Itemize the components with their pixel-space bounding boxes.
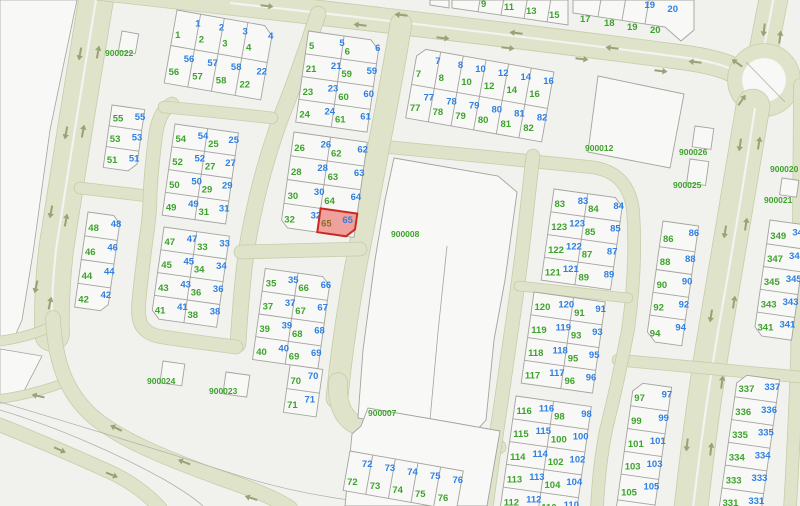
svg-text:61: 61 [360,112,371,123]
svg-text:331: 331 [723,498,740,506]
svg-text:336: 336 [761,405,777,416]
svg-text:19: 19 [644,0,655,11]
svg-text:123: 123 [569,219,585,230]
svg-text:9: 9 [481,0,486,10]
svg-text:113: 113 [507,475,522,486]
svg-text:94: 94 [650,328,661,339]
svg-text:94: 94 [675,322,686,333]
svg-text:112: 112 [526,495,541,506]
svg-text:113: 113 [529,472,544,483]
svg-text:47: 47 [187,234,198,245]
svg-text:22: 22 [240,80,251,91]
svg-text:37: 37 [263,301,274,312]
svg-text:57: 57 [192,71,203,82]
svg-text:75: 75 [430,471,441,482]
svg-text:43: 43 [180,279,191,290]
svg-text:75: 75 [415,489,426,500]
svg-text:59: 59 [367,66,378,77]
svg-text:101: 101 [628,439,645,450]
svg-text:26: 26 [321,139,332,150]
svg-text:345: 345 [786,274,800,285]
svg-text:115: 115 [513,429,529,440]
svg-text:118: 118 [552,345,567,356]
svg-text:78: 78 [446,97,457,108]
svg-text:61: 61 [335,115,346,126]
svg-text:900021: 900021 [764,195,793,205]
svg-text:16: 16 [543,76,554,87]
svg-text:74: 74 [392,485,403,496]
svg-text:334: 334 [755,450,772,461]
svg-text:11: 11 [504,2,515,13]
svg-text:34: 34 [216,261,227,272]
svg-text:50: 50 [169,180,180,191]
svg-text:43: 43 [158,283,169,294]
svg-text:30: 30 [288,191,299,202]
svg-text:73: 73 [370,481,381,492]
svg-text:104: 104 [566,477,583,488]
svg-text:85: 85 [585,227,596,238]
svg-text:66: 66 [321,280,332,291]
svg-text:92: 92 [679,300,690,311]
svg-text:29: 29 [222,181,233,192]
svg-text:84: 84 [588,204,599,215]
svg-text:93: 93 [592,327,603,338]
svg-text:12: 12 [484,81,495,92]
svg-text:55: 55 [113,113,124,124]
svg-text:68: 68 [292,329,303,340]
svg-text:63: 63 [354,168,365,179]
svg-text:97: 97 [634,393,645,404]
svg-text:79: 79 [469,101,480,112]
svg-text:349: 349 [792,228,800,239]
svg-text:76: 76 [438,493,449,504]
svg-text:36: 36 [213,284,224,295]
svg-text:4: 4 [246,43,252,54]
svg-text:52: 52 [195,154,206,165]
svg-text:97: 97 [662,390,673,401]
svg-text:19: 19 [627,22,638,33]
svg-text:62: 62 [357,145,368,156]
svg-text:64: 64 [351,192,362,203]
svg-text:83: 83 [578,196,589,207]
svg-text:27: 27 [205,162,216,173]
svg-text:331: 331 [748,496,765,506]
svg-text:90: 90 [682,277,693,288]
svg-text:56: 56 [169,67,180,78]
svg-text:28: 28 [317,163,328,174]
svg-text:120: 120 [558,300,574,311]
svg-text:112: 112 [504,497,519,506]
svg-text:119: 119 [556,323,571,334]
svg-text:77: 77 [410,103,421,114]
svg-text:900008: 900008 [391,229,420,239]
svg-text:84: 84 [613,201,624,212]
svg-text:42: 42 [78,295,89,306]
svg-text:81: 81 [501,119,512,130]
svg-text:38: 38 [210,307,221,318]
svg-text:73: 73 [385,463,396,474]
svg-text:91: 91 [574,308,585,319]
svg-text:33: 33 [219,238,230,249]
svg-text:48: 48 [88,223,99,234]
svg-text:72: 72 [347,477,358,488]
svg-text:115: 115 [536,426,552,437]
svg-text:1: 1 [175,30,181,41]
svg-text:16: 16 [529,89,540,100]
svg-text:3: 3 [243,27,248,38]
svg-text:96: 96 [565,376,576,387]
svg-text:49: 49 [188,199,199,210]
svg-text:118: 118 [528,348,543,359]
svg-text:93: 93 [571,331,582,342]
svg-text:59: 59 [341,69,352,80]
svg-text:92: 92 [653,303,664,314]
svg-text:52: 52 [172,157,183,168]
svg-text:53: 53 [132,133,143,144]
svg-text:88: 88 [685,254,696,265]
svg-text:114: 114 [532,449,548,460]
svg-text:15: 15 [549,10,560,21]
svg-text:57: 57 [207,58,218,69]
svg-text:28: 28 [291,167,302,178]
svg-text:64: 64 [324,196,335,207]
svg-text:114: 114 [510,452,526,463]
svg-text:65: 65 [321,219,332,230]
svg-text:900007: 900007 [368,408,397,418]
svg-text:89: 89 [579,272,590,283]
svg-text:39: 39 [259,324,270,335]
svg-text:32: 32 [284,215,295,226]
svg-text:333: 333 [752,473,768,484]
svg-text:58: 58 [231,62,242,73]
svg-text:62: 62 [331,148,342,159]
svg-text:24: 24 [299,110,310,121]
svg-text:29: 29 [202,184,213,195]
svg-text:45: 45 [161,260,172,271]
svg-text:337: 337 [764,382,780,393]
svg-text:22: 22 [257,67,268,78]
svg-text:4: 4 [268,31,274,42]
svg-text:122: 122 [548,245,564,256]
svg-text:900024: 900024 [147,376,176,386]
svg-text:70: 70 [291,376,302,387]
svg-text:105: 105 [643,482,660,493]
svg-text:56: 56 [184,54,195,65]
svg-text:10: 10 [475,64,486,75]
svg-text:3: 3 [222,39,227,50]
svg-text:60: 60 [363,89,374,100]
svg-text:27: 27 [225,158,236,169]
svg-text:122: 122 [566,242,582,253]
svg-text:40: 40 [278,344,289,355]
svg-text:99: 99 [658,413,669,424]
svg-text:47: 47 [165,237,176,248]
svg-text:40: 40 [256,347,267,358]
svg-text:79: 79 [455,111,466,122]
svg-text:69: 69 [289,352,300,363]
svg-text:51: 51 [129,153,140,164]
svg-text:63: 63 [328,172,339,183]
svg-text:2: 2 [219,23,224,34]
svg-text:14: 14 [507,85,518,96]
svg-text:46: 46 [85,247,96,258]
svg-text:67: 67 [317,303,328,314]
svg-text:74: 74 [407,467,418,478]
svg-text:20: 20 [650,25,661,36]
svg-text:13: 13 [526,6,537,17]
svg-text:23: 23 [303,87,314,98]
svg-text:25: 25 [228,135,239,146]
svg-text:1: 1 [195,18,201,29]
svg-text:33: 33 [197,242,208,253]
svg-text:44: 44 [104,266,115,277]
svg-text:343: 343 [761,300,777,311]
svg-text:102: 102 [548,457,564,468]
svg-text:35: 35 [266,279,277,290]
svg-text:90: 90 [657,280,668,291]
svg-text:110: 110 [541,503,556,506]
svg-text:347: 347 [767,254,783,265]
svg-text:900023: 900023 [209,386,238,396]
svg-text:42: 42 [101,290,112,301]
svg-text:20: 20 [667,4,678,15]
svg-text:117: 117 [549,368,564,379]
svg-text:7: 7 [416,69,421,80]
svg-text:86: 86 [689,228,700,239]
svg-text:116: 116 [539,404,554,415]
svg-text:41: 41 [155,306,166,317]
svg-text:76: 76 [453,475,464,486]
svg-text:25: 25 [208,139,219,150]
svg-text:72: 72 [362,459,373,470]
svg-text:98: 98 [581,409,592,420]
svg-text:91: 91 [595,304,606,315]
svg-text:60: 60 [338,92,349,103]
svg-text:78: 78 [433,107,444,118]
svg-text:116: 116 [517,406,532,417]
svg-text:6: 6 [375,43,380,54]
svg-text:345: 345 [764,277,781,288]
svg-text:46: 46 [107,243,118,254]
svg-text:96: 96 [586,373,597,384]
svg-text:36: 36 [191,287,202,298]
svg-text:38: 38 [188,310,199,321]
svg-text:99: 99 [631,416,642,427]
svg-text:333: 333 [726,475,742,486]
svg-text:68: 68 [314,325,325,336]
svg-text:82: 82 [537,113,548,124]
svg-text:69: 69 [311,348,322,359]
svg-text:82: 82 [523,123,534,134]
svg-text:900020: 900020 [770,164,799,174]
svg-text:900012: 900012 [585,143,614,153]
svg-text:31: 31 [199,207,210,218]
svg-text:55: 55 [135,112,146,123]
svg-text:51: 51 [107,155,118,166]
svg-text:102: 102 [570,454,586,465]
svg-text:80: 80 [492,105,503,116]
svg-text:86: 86 [663,234,674,245]
svg-text:37: 37 [285,298,296,309]
svg-text:337: 337 [739,384,755,395]
svg-text:104: 104 [545,480,562,491]
svg-text:347: 347 [789,251,800,262]
svg-text:26: 26 [294,143,305,154]
svg-text:66: 66 [298,283,309,294]
svg-text:71: 71 [305,395,316,406]
svg-text:5: 5 [309,41,315,52]
svg-text:44: 44 [82,271,93,282]
svg-text:95: 95 [589,350,600,361]
svg-text:119: 119 [531,325,546,336]
svg-text:7: 7 [435,56,440,67]
svg-text:70: 70 [308,371,319,382]
svg-text:121: 121 [545,268,562,279]
svg-text:336: 336 [735,407,751,418]
svg-text:103: 103 [625,462,641,473]
svg-text:101: 101 [650,436,667,447]
svg-text:349: 349 [770,231,786,242]
svg-text:54: 54 [176,134,187,145]
svg-text:77: 77 [424,93,435,104]
svg-text:21: 21 [306,64,317,75]
svg-text:88: 88 [660,257,671,268]
svg-text:8: 8 [458,60,463,71]
svg-text:53: 53 [110,134,121,145]
svg-text:103: 103 [647,459,663,470]
svg-text:120: 120 [535,302,551,313]
svg-text:121: 121 [563,264,580,275]
svg-text:17: 17 [580,14,591,25]
svg-text:58: 58 [216,76,227,87]
svg-text:39: 39 [282,321,293,332]
svg-text:18: 18 [604,18,615,29]
svg-text:95: 95 [568,353,579,364]
svg-text:83: 83 [555,199,566,210]
svg-text:10: 10 [461,77,472,88]
svg-text:105: 105 [621,487,638,498]
svg-text:89: 89 [604,269,615,280]
svg-text:2: 2 [199,34,204,45]
svg-text:50: 50 [191,176,202,187]
svg-text:12: 12 [498,68,509,79]
svg-text:334: 334 [729,453,746,464]
svg-text:14: 14 [521,72,532,83]
svg-text:8: 8 [439,73,444,84]
svg-text:335: 335 [732,430,749,441]
svg-text:49: 49 [166,203,177,214]
svg-text:6: 6 [345,46,350,57]
svg-text:110: 110 [564,500,579,506]
svg-text:900026: 900026 [679,147,708,157]
svg-text:335: 335 [758,428,775,439]
svg-text:81: 81 [514,109,525,120]
svg-text:900022: 900022 [105,48,134,58]
svg-text:71: 71 [287,400,298,411]
svg-text:48: 48 [111,219,122,230]
svg-text:85: 85 [610,224,621,235]
svg-text:100: 100 [573,432,589,443]
svg-text:98: 98 [554,412,565,423]
svg-text:341: 341 [779,320,796,331]
svg-text:80: 80 [478,115,489,126]
svg-text:100: 100 [551,434,567,445]
svg-text:30: 30 [314,187,325,198]
svg-text:34: 34 [194,265,205,276]
svg-text:65: 65 [342,215,353,226]
svg-text:87: 87 [607,247,618,258]
svg-text:117: 117 [525,371,540,382]
svg-text:87: 87 [582,250,593,261]
svg-text:123: 123 [551,222,567,233]
svg-text:67: 67 [295,306,306,317]
svg-text:341: 341 [758,322,775,333]
svg-text:31: 31 [219,203,230,214]
svg-text:343: 343 [783,297,799,308]
svg-text:900025: 900025 [673,180,702,190]
svg-text:23: 23 [328,84,339,95]
